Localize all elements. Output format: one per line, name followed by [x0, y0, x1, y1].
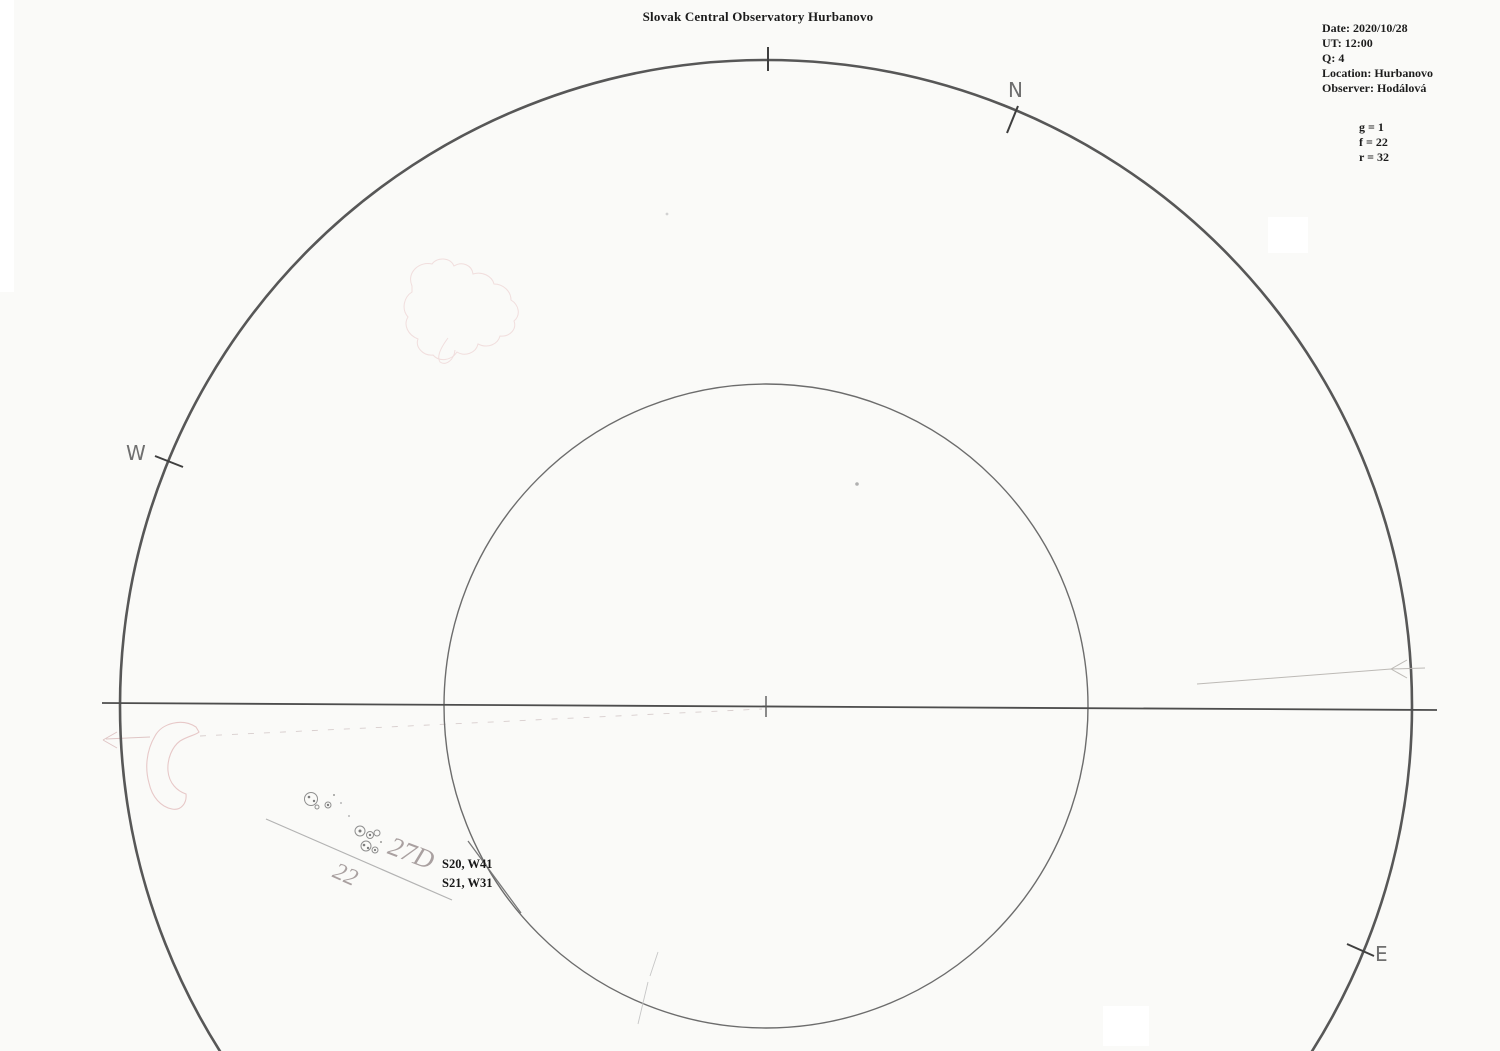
ghost-guide-line	[200, 709, 762, 736]
page-title: Slovak Central Observatory Hurbanovo	[0, 9, 1500, 25]
north-label: N	[1008, 80, 1023, 100]
pencil-smudge	[666, 213, 669, 216]
ghost-bleedthrough-outline-upper	[404, 259, 518, 363]
date-line: Date: 2020/10/28	[1322, 21, 1433, 36]
observation-info: Date: 2020/10/28 UT: 12:00 Q: 4 Location…	[1322, 21, 1433, 96]
observation-sheet: Slovak Central Observatory Hurbanovo Dat…	[0, 0, 1500, 1051]
location-line: Location: Hurbanovo	[1322, 66, 1433, 81]
spot-coordinate-labels: S20, W41 S21, W31	[442, 855, 492, 893]
east-tick	[1347, 944, 1374, 956]
wolf-number-line: r = 32	[1359, 150, 1389, 165]
pencil-arrow-right	[1197, 660, 1425, 684]
group-count-line: g = 1	[1359, 120, 1389, 135]
spot-count-line: f = 22	[1359, 135, 1389, 150]
east-label: E	[1375, 944, 1388, 964]
equator-line	[102, 703, 1437, 710]
scan-artifact-patch	[0, 0, 14, 292]
ghost-arrow-left	[103, 732, 150, 748]
west-label: W	[126, 443, 146, 463]
pencil-smudge	[855, 482, 859, 486]
ut-line: UT: 12:00	[1322, 36, 1433, 51]
scan-artifact-patch	[1268, 217, 1308, 253]
sunspot-group-sketch	[305, 793, 383, 854]
quality-line: Q: 4	[1322, 51, 1433, 66]
sunspot-counts: g = 1 f = 22 r = 32	[1359, 120, 1389, 165]
spot-coordinates-line1: S20, W41	[442, 855, 492, 874]
ghost-bleedthrough-outline-lower	[147, 722, 199, 809]
spot-coordinates-line2: S21, W31	[442, 874, 492, 893]
observer-line: Observer: Hodálová	[1322, 81, 1433, 96]
faint-pencil-stroke-bottom	[638, 952, 658, 1024]
solar-disk-drawing	[0, 0, 1500, 1051]
solar-disk-circle	[120, 60, 1412, 1051]
scan-artifact-patch	[1103, 1006, 1149, 1046]
